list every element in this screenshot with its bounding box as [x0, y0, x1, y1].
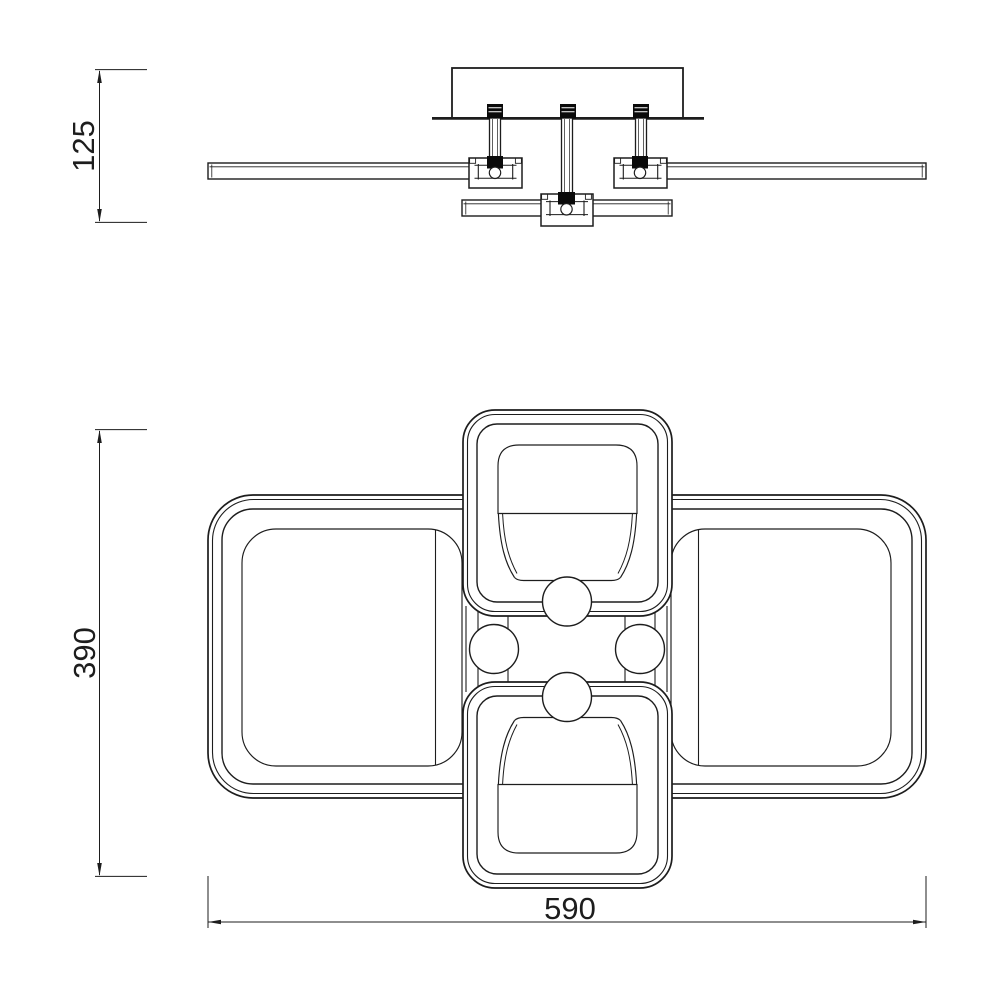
side-bar-right: [660, 163, 926, 179]
arrow-down: [97, 863, 102, 876]
bracket-center: [541, 192, 593, 226]
mounting-block-center: [560, 104, 576, 119]
stem-left: [490, 118, 501, 158]
dimension-390: 390: [67, 430, 147, 877]
mounting-block-right: [633, 104, 649, 119]
technical-drawing: 125: [0, 0, 1000, 1000]
bracket-right: [614, 156, 667, 188]
extension-lines: [95, 70, 147, 223]
extension-lines: [95, 430, 147, 877]
dimension-label: 390: [67, 627, 102, 679]
screw-right: [634, 167, 645, 178]
ball-bottom: [543, 673, 592, 722]
screw-center: [561, 204, 572, 215]
arrow-down: [97, 209, 102, 222]
plan-view: [208, 410, 926, 888]
right-panel: [671, 529, 891, 766]
mounting-block-left: [487, 104, 503, 119]
screw-left: [489, 167, 500, 178]
arrow-up: [97, 70, 102, 83]
arrow-up: [97, 430, 102, 443]
stem-center: [562, 118, 573, 194]
side-bar-left: [208, 163, 475, 179]
drawing-page: 125: [0, 0, 1000, 1000]
bracket-left: [469, 156, 522, 188]
dimension-125: 125: [66, 70, 147, 223]
left-panel: [242, 529, 462, 766]
ball-right: [616, 625, 665, 674]
arrow-left: [208, 920, 221, 925]
dimension-label: 125: [66, 120, 101, 172]
side-view: [208, 68, 926, 226]
ball-top: [543, 577, 592, 626]
dimension-label: 590: [544, 891, 596, 926]
stem-right: [636, 118, 647, 158]
arrow-right: [913, 920, 926, 925]
ball-left: [470, 625, 519, 674]
